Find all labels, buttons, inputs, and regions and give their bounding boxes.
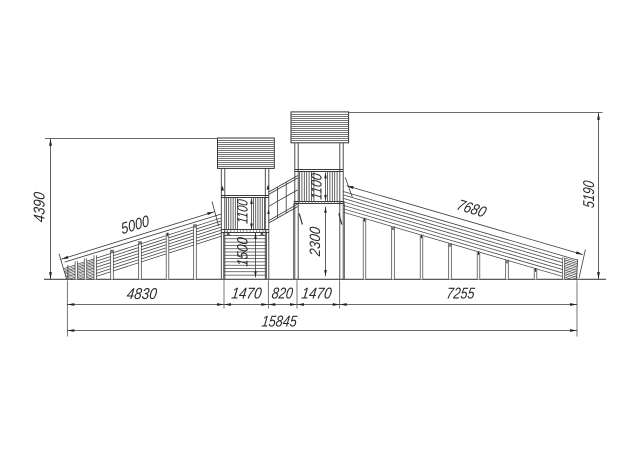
svg-text:2300: 2300: [307, 225, 324, 257]
svg-text:5190: 5190: [581, 180, 598, 209]
svg-text:1470: 1470: [231, 285, 263, 302]
svg-text:1470: 1470: [301, 285, 333, 302]
svg-text:4390: 4390: [31, 191, 48, 223]
svg-text:820: 820: [271, 285, 294, 302]
svg-text:1100: 1100: [309, 172, 326, 201]
svg-text:7680: 7680: [454, 197, 489, 221]
svg-text:7255: 7255: [446, 286, 476, 303]
svg-text:5000: 5000: [120, 213, 151, 238]
svg-text:4830: 4830: [126, 286, 158, 303]
svg-text:1500: 1500: [234, 236, 251, 268]
svg-text:15845: 15845: [261, 314, 298, 331]
svg-text:1100: 1100: [234, 198, 251, 225]
